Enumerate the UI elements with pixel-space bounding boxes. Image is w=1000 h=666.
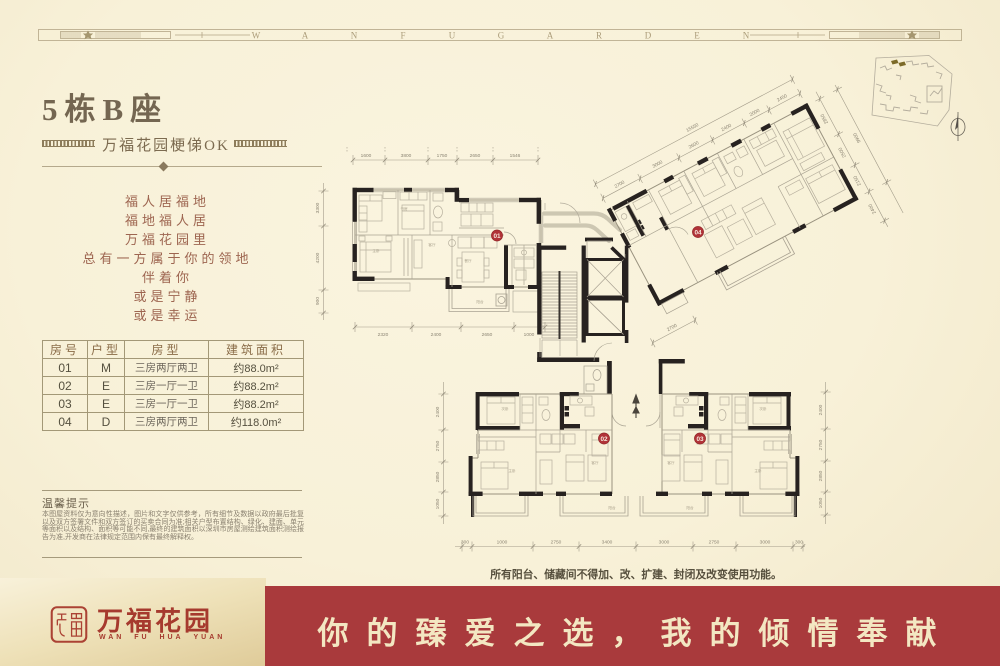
svg-text:2320: 2320 <box>378 332 389 338</box>
svg-text:1000: 1000 <box>524 332 535 338</box>
svg-text:2750: 2750 <box>818 439 824 450</box>
svg-text:3400: 3400 <box>602 540 613 546</box>
svg-text:2000: 2000 <box>749 108 762 118</box>
svg-text:阳台: 阳台 <box>476 299 484 304</box>
svg-text:阳台: 阳台 <box>686 505 694 510</box>
svg-text:G: G <box>498 31 505 41</box>
svg-text:书房: 书房 <box>400 206 408 211</box>
svg-text:N: N <box>351 31 358 41</box>
svg-text:餐厅: 餐厅 <box>464 258 472 263</box>
svg-text:客厅: 客厅 <box>667 460 675 465</box>
svg-text:2700: 2700 <box>666 323 679 333</box>
svg-text:300: 300 <box>795 540 803 546</box>
svg-text:A: A <box>547 31 554 41</box>
svg-text:2750: 2750 <box>709 540 720 546</box>
svg-text:客厅: 客厅 <box>428 242 436 247</box>
svg-text:3000: 3000 <box>659 540 670 546</box>
svg-text:2450: 2450 <box>776 93 789 103</box>
svg-text:2650: 2650 <box>470 153 481 159</box>
svg-text:03: 03 <box>696 436 704 443</box>
svg-text:3000: 3000 <box>652 159 665 169</box>
svg-text:300: 300 <box>461 540 469 546</box>
svg-text:W: W <box>252 31 261 41</box>
svg-text:2400: 2400 <box>818 404 824 415</box>
svg-text:01: 01 <box>493 233 501 240</box>
svg-text:1050: 1050 <box>818 497 824 508</box>
svg-text:主卧: 主卧 <box>754 468 762 473</box>
svg-text:R: R <box>596 31 602 41</box>
svg-text:客厅: 客厅 <box>591 460 599 465</box>
svg-text:04: 04 <box>694 230 702 237</box>
svg-text:N: N <box>743 31 750 41</box>
svg-text:2600: 2600 <box>688 140 701 150</box>
svg-text:1750: 1750 <box>437 153 448 159</box>
svg-text:1050: 1050 <box>435 498 441 509</box>
svg-text:2400: 2400 <box>720 123 733 133</box>
svg-text:2850: 2850 <box>818 470 824 481</box>
svg-text:E: E <box>694 31 700 41</box>
svg-text:次卧: 次卧 <box>501 406 509 411</box>
svg-text:1546: 1546 <box>510 153 521 159</box>
svg-text:次卧: 次卧 <box>759 406 767 411</box>
svg-text:2750: 2750 <box>435 440 441 451</box>
svg-text:3300: 3300 <box>315 202 321 213</box>
svg-text:2700: 2700 <box>614 179 627 189</box>
svg-text:2400: 2400 <box>435 406 441 417</box>
svg-text:D: D <box>645 31 652 41</box>
svg-text:主卧: 主卧 <box>508 468 516 473</box>
svg-text:2850: 2850 <box>435 471 441 482</box>
svg-text:主卧: 主卧 <box>372 248 380 253</box>
svg-text:F: F <box>400 31 405 41</box>
svg-text:U: U <box>449 31 456 41</box>
svg-text:2400: 2400 <box>431 332 442 338</box>
svg-text:1000: 1000 <box>497 540 508 546</box>
svg-text:3800: 3800 <box>401 153 412 159</box>
svg-text:15550: 15550 <box>685 122 700 134</box>
svg-text:阳台: 阳台 <box>608 505 616 510</box>
svg-text:4200: 4200 <box>315 252 321 263</box>
svg-text:02: 02 <box>600 436 608 443</box>
svg-text:900: 900 <box>315 297 321 305</box>
svg-text:2750: 2750 <box>551 540 562 546</box>
svg-text:A: A <box>302 31 309 41</box>
svg-text:3000: 3000 <box>760 540 771 546</box>
svg-text:2650: 2650 <box>482 332 493 338</box>
svg-text:1600: 1600 <box>361 153 372 159</box>
